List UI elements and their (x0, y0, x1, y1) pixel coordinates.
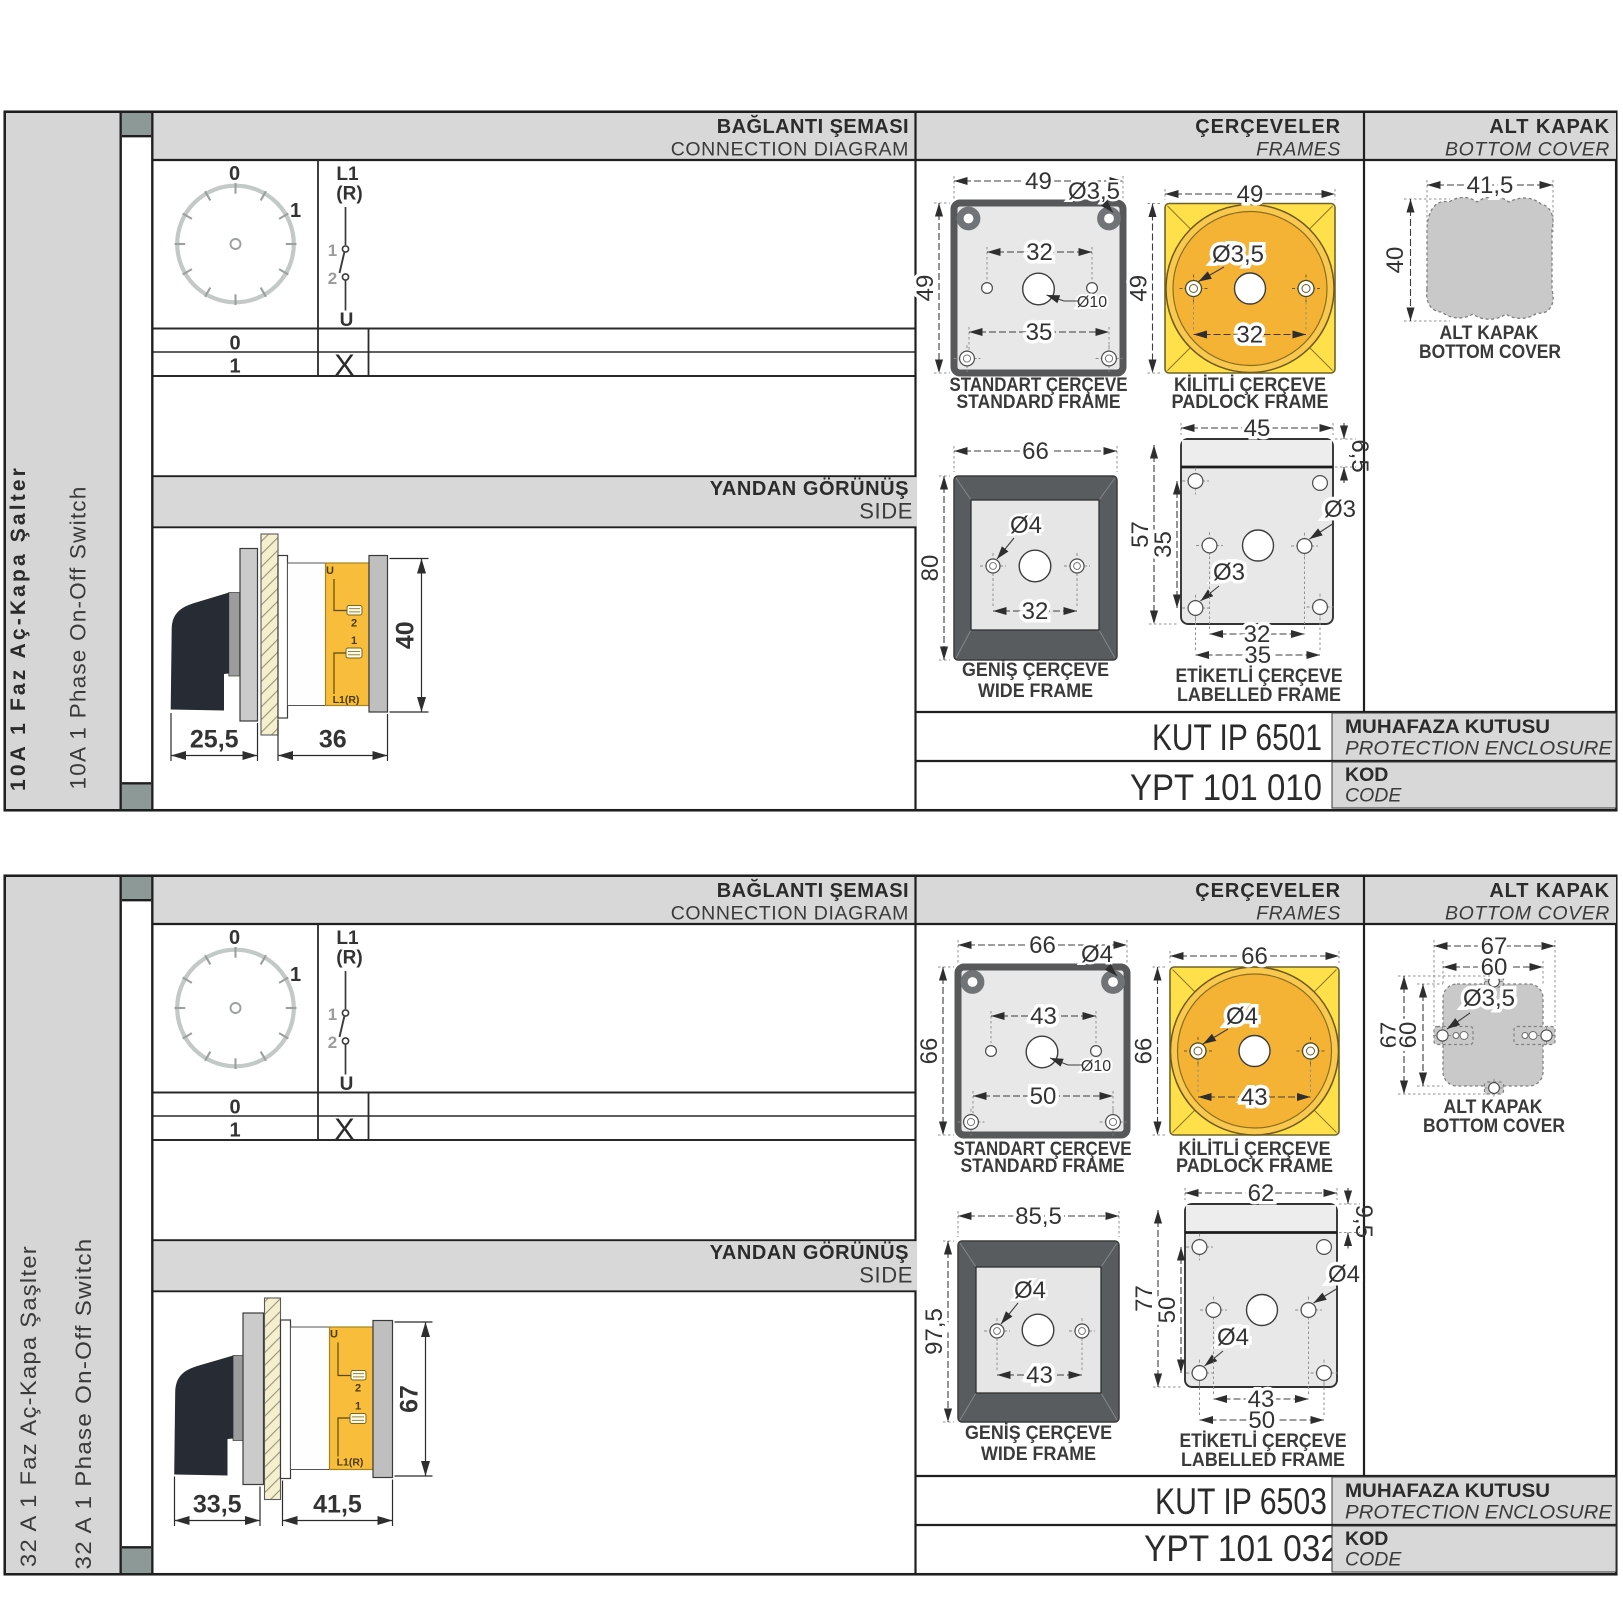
svg-text:32 A 1 Faz Aç-Kapa Şaşlter: 32 A 1 Faz Aç-Kapa Şaşlter (16, 1245, 41, 1567)
svg-text:Ø3: Ø3 (1213, 559, 1245, 586)
svg-text:33,5: 33,5 (193, 1491, 242, 1519)
svg-text:Ø3,5: Ø3,5 (1068, 178, 1120, 205)
svg-text:43: 43 (1026, 1362, 1053, 1389)
svg-text:49: 49 (1126, 275, 1153, 302)
svg-text:CONNECTION DIAGRAM: CONNECTION DIAGRAM (671, 903, 909, 925)
svg-text:Ø3,5: Ø3,5 (1463, 985, 1515, 1012)
svg-text:Ø4: Ø4 (1217, 1324, 1249, 1351)
svg-text:GENİŞ ÇERÇEVE: GENİŞ ÇERÇEVE (962, 658, 1109, 681)
svg-text:1: 1 (229, 1120, 240, 1142)
svg-text:25,5: 25,5 (190, 726, 239, 754)
svg-text:Ø4: Ø4 (1226, 1003, 1258, 1030)
svg-text:CODE: CODE (1345, 785, 1402, 807)
svg-text:U: U (330, 1329, 338, 1341)
svg-text:60: 60 (1395, 1022, 1422, 1049)
svg-text:36: 36 (319, 726, 347, 754)
svg-text:97,5: 97,5 (921, 1308, 948, 1355)
svg-text:BOTTOM COVER: BOTTOM COVER (1445, 139, 1610, 161)
svg-text:6,5: 6,5 (1346, 439, 1373, 472)
svg-text:32: 32 (1026, 239, 1053, 266)
svg-text:41,5: 41,5 (313, 1491, 362, 1519)
svg-text:0: 0 (229, 163, 240, 185)
svg-text:U: U (326, 565, 334, 577)
svg-text:BOTTOM COVER: BOTTOM COVER (1445, 903, 1610, 925)
svg-text:Ø10: Ø10 (1077, 294, 1107, 311)
svg-text:45: 45 (1244, 415, 1271, 442)
svg-text:9,5: 9,5 (1350, 1205, 1377, 1238)
svg-text:CODE: CODE (1345, 1549, 1402, 1571)
svg-text:Ø3: Ø3 (1324, 496, 1356, 523)
svg-text:BOTTOM COVER: BOTTOM COVER (1423, 1115, 1565, 1137)
svg-text:49: 49 (912, 275, 939, 302)
svg-text:L1: L1 (336, 928, 359, 949)
svg-text:32: 32 (1022, 598, 1049, 625)
svg-text:62: 62 (1248, 1180, 1275, 1207)
svg-text:49: 49 (1237, 181, 1264, 208)
svg-text:WIDE FRAME: WIDE FRAME (981, 1443, 1096, 1465)
svg-text:YPT 101 032: YPT 101 032 (1144, 1528, 1339, 1569)
svg-text:43: 43 (1241, 1084, 1268, 1111)
svg-text:MUHAFAZA KUTUSU: MUHAFAZA KUTUSU (1345, 716, 1550, 738)
svg-text:ALT KAPAK: ALT KAPAK (1489, 116, 1610, 138)
svg-text:40: 40 (392, 621, 420, 649)
svg-text:X: X (334, 1112, 355, 1147)
svg-text:1: 1 (351, 635, 357, 647)
svg-text:2: 2 (328, 269, 337, 288)
svg-text:Ø4: Ø4 (1081, 941, 1113, 968)
svg-text:ÇERÇEVELER: ÇERÇEVELER (1195, 116, 1341, 138)
svg-text:66: 66 (916, 1038, 943, 1065)
svg-text:1: 1 (229, 356, 240, 378)
svg-text:LABELLED FRAME: LABELLED FRAME (1177, 684, 1341, 706)
svg-text:YANDAN GÖRÜNÜŞ: YANDAN GÖRÜNÜŞ (710, 1241, 909, 1264)
svg-text:(R): (R) (336, 184, 362, 205)
svg-text:41,5: 41,5 (1467, 172, 1514, 199)
svg-text:MUHAFAZA KUTUSU: MUHAFAZA KUTUSU (1345, 1480, 1550, 1502)
svg-text:STANDARD FRAME: STANDARD FRAME (961, 1155, 1125, 1177)
svg-text:66: 66 (1131, 1038, 1158, 1065)
svg-text:35: 35 (1150, 531, 1177, 558)
svg-text:66: 66 (1022, 438, 1049, 465)
svg-text:PADLOCK FRAME: PADLOCK FRAME (1176, 1155, 1333, 1177)
svg-text:2: 2 (351, 618, 357, 630)
svg-text:PROTECTION ENCLOSURE: PROTECTION ENCLOSURE (1345, 1503, 1612, 1524)
svg-text:ÇERÇEVELER: ÇERÇEVELER (1195, 880, 1341, 902)
svg-text:66: 66 (1029, 932, 1056, 959)
svg-text:BAĞLANTI ŞEMASI: BAĞLANTI ŞEMASI (717, 114, 909, 138)
svg-text:L1(R): L1(R) (333, 694, 360, 706)
svg-text:0: 0 (229, 333, 240, 355)
svg-text:1: 1 (328, 1005, 337, 1024)
svg-text:L1(R): L1(R) (337, 1457, 364, 1469)
svg-text:SIDE: SIDE (859, 1263, 913, 1288)
svg-text:L1: L1 (336, 164, 359, 185)
svg-text:2: 2 (328, 1033, 337, 1052)
svg-text:2: 2 (355, 1383, 361, 1395)
svg-text:FRAMES: FRAMES (1256, 139, 1341, 161)
svg-text:50: 50 (1030, 1083, 1057, 1110)
svg-text:Ø3,5: Ø3,5 (1212, 241, 1264, 268)
svg-text:(R): (R) (336, 948, 362, 969)
svg-text:KOD: KOD (1345, 764, 1388, 786)
svg-text:1: 1 (328, 241, 337, 260)
svg-text:40: 40 (1382, 247, 1409, 274)
svg-text:Ø4: Ø4 (1010, 512, 1042, 539)
svg-text:LABELLED FRAME: LABELLED FRAME (1181, 1449, 1345, 1471)
svg-text:Ø10: Ø10 (1081, 1058, 1111, 1075)
svg-text:YPT 101 010: YPT 101 010 (1130, 767, 1322, 808)
svg-text:KUT IP 6501: KUT IP 6501 (1152, 717, 1322, 758)
svg-text:1: 1 (290, 964, 301, 986)
svg-text:SIDE: SIDE (859, 499, 913, 524)
svg-text:PROTECTION ENCLOSURE: PROTECTION ENCLOSURE (1345, 739, 1612, 760)
svg-text:1: 1 (355, 1401, 361, 1413)
svg-text:YANDAN GÖRÜNÜŞ: YANDAN GÖRÜNÜŞ (710, 477, 909, 500)
svg-text:10A 1 Phase On-Off Switch: 10A 1 Phase On-Off Switch (66, 486, 91, 790)
svg-text:CONNECTION DIAGRAM: CONNECTION DIAGRAM (671, 139, 909, 161)
svg-text:85,5: 85,5 (1015, 1203, 1062, 1230)
svg-text:49: 49 (1025, 168, 1052, 195)
svg-text:50: 50 (1154, 1297, 1181, 1324)
svg-text:BOTTOM COVER: BOTTOM COVER (1419, 341, 1561, 363)
svg-text:1: 1 (290, 200, 301, 222)
svg-text:0: 0 (229, 927, 240, 949)
svg-text:10A 1 Faz Aç-Kapa Şalter: 10A 1 Faz Aç-Kapa Şalter (6, 465, 30, 791)
svg-text:66: 66 (1241, 943, 1268, 970)
svg-text:KOD: KOD (1345, 1528, 1388, 1550)
svg-text:0: 0 (229, 1097, 240, 1119)
svg-text:32: 32 (1236, 322, 1263, 349)
svg-text:67: 67 (396, 1385, 424, 1413)
svg-text:STANDARD FRAME: STANDARD FRAME (957, 391, 1121, 413)
svg-text:Ø4: Ø4 (1328, 1261, 1360, 1288)
svg-text:ALT KAPAK: ALT KAPAK (1489, 880, 1610, 902)
svg-text:BAĞLANTI ŞEMASI: BAĞLANTI ŞEMASI (717, 878, 909, 902)
svg-text:GENİŞ ÇERÇEVE: GENİŞ ÇERÇEVE (965, 1421, 1112, 1444)
svg-text:80: 80 (917, 555, 944, 582)
svg-text:60: 60 (1481, 954, 1508, 981)
svg-text:43: 43 (1030, 1003, 1057, 1030)
svg-text:PADLOCK FRAME: PADLOCK FRAME (1172, 391, 1329, 413)
svg-text:X: X (334, 348, 355, 383)
svg-text:WIDE FRAME: WIDE FRAME (978, 680, 1093, 702)
svg-text:32 A 1 Phase On-Off Switch: 32 A 1 Phase On-Off Switch (71, 1238, 96, 1570)
svg-text:FRAMES: FRAMES (1256, 903, 1341, 925)
svg-text:35: 35 (1026, 319, 1053, 346)
svg-text:KUT IP 6503: KUT IP 6503 (1155, 1481, 1327, 1522)
svg-text:Ø4: Ø4 (1014, 1277, 1046, 1304)
